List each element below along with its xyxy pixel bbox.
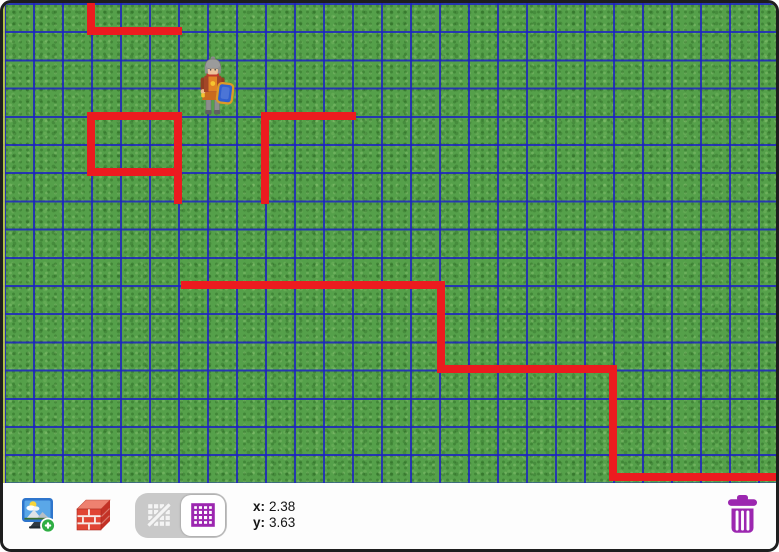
wall-line[interactable] <box>185 285 776 477</box>
monitor-picture-plus-icon <box>20 496 57 534</box>
knight-character[interactable] <box>193 56 235 118</box>
grid-toggle-group <box>135 493 227 538</box>
app-window: x:2.38 y:3.63 <box>0 0 779 552</box>
grid-icon <box>191 503 215 527</box>
grid-off-toggle[interactable] <box>137 495 181 536</box>
coordinate-x: x:2.38 <box>253 499 295 516</box>
wall-line[interactable] <box>91 116 178 200</box>
wall-line[interactable] <box>265 116 352 200</box>
trash-button[interactable] <box>727 495 758 535</box>
wall-brick-button[interactable] <box>74 497 111 533</box>
grid-slash-icon <box>147 503 171 527</box>
toolbar: x:2.38 y:3.63 <box>3 483 776 549</box>
stage-left-edge <box>3 3 5 483</box>
walls-layer[interactable] <box>3 3 776 483</box>
stage-grid-canvas[interactable] <box>3 3 776 483</box>
trash-can-icon <box>727 495 758 535</box>
wall-line[interactable] <box>91 3 178 31</box>
add-background-image-button[interactable] <box>20 496 57 534</box>
grid-on-toggle[interactable] <box>181 495 225 536</box>
coordinate-y: y:3.63 <box>253 515 295 532</box>
coordinates-readout: x:2.38 y:3.63 <box>253 499 295 532</box>
brick-block-icon <box>74 497 111 533</box>
